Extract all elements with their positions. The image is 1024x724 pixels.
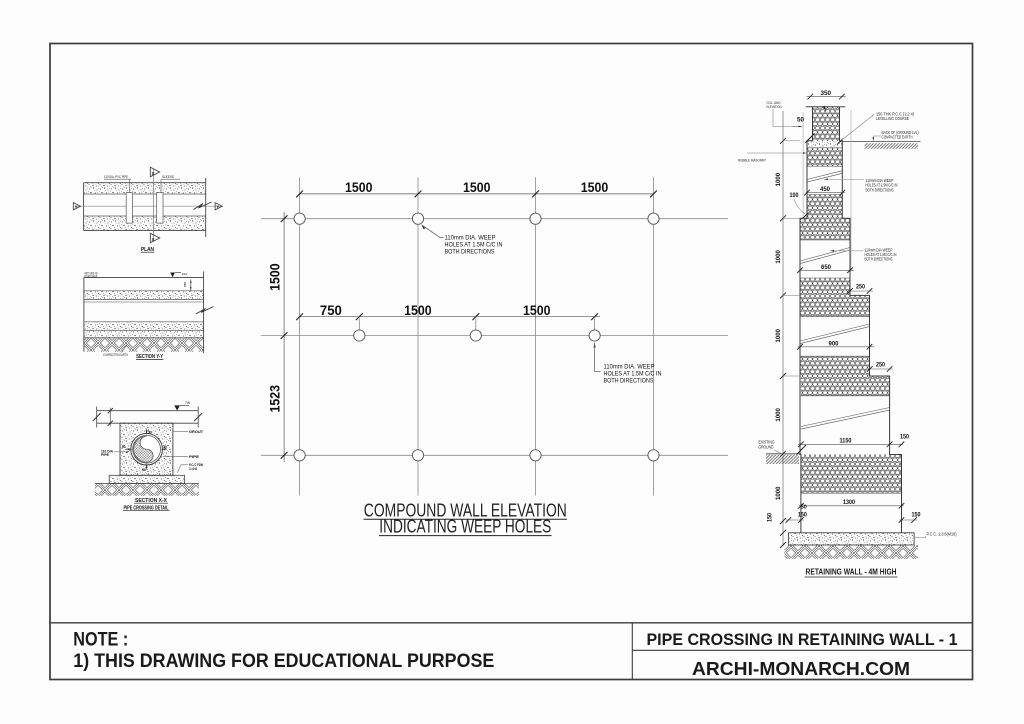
svg-text:1000: 1000 xyxy=(776,328,782,342)
svg-text:150: 150 xyxy=(900,435,910,441)
svg-text:1523: 1523 xyxy=(267,385,283,413)
svg-text:150: 150 xyxy=(912,513,922,519)
svg-text:1500: 1500 xyxy=(404,302,432,318)
svg-text:RETAINING WALL - 4M HIGH: RETAINING WALL - 4M HIGH xyxy=(806,567,897,577)
svg-text:P.C.C. 1:3:6(M10): P.C.C. 1:3:6(M10) xyxy=(927,531,958,536)
svg-text:Y: Y xyxy=(216,204,219,209)
svg-text:50: 50 xyxy=(122,445,126,449)
svg-text:ELEVATION: ELEVATION xyxy=(767,105,782,109)
svg-text:1500: 1500 xyxy=(463,179,491,195)
svg-text:750: 750 xyxy=(320,302,342,318)
svg-text:NOTE :: NOTE : xyxy=(73,630,128,651)
svg-text:HOLES AT 1.5M C/C IN: HOLES AT 1.5M C/C IN xyxy=(604,370,662,377)
svg-text:1300: 1300 xyxy=(843,500,856,506)
svg-text:1500: 1500 xyxy=(345,179,373,195)
svg-text:1000: 1000 xyxy=(776,172,782,186)
svg-text:150: 150 xyxy=(183,282,187,287)
svg-text:INDICATING WEEP HOLES: INDICATING WEEP HOLES xyxy=(379,517,551,537)
svg-text:50: 50 xyxy=(801,505,807,511)
svg-text:650: 650 xyxy=(821,265,832,271)
svg-text:1:4:8: 1:4:8 xyxy=(189,467,197,471)
svg-text:HOLES AT 1.5M C/C IN: HOLES AT 1.5M C/C IN xyxy=(445,241,503,248)
svg-text:250: 250 xyxy=(856,284,866,290)
svg-text:BOTH DIRECTIONS: BOTH DIRECTIONS xyxy=(866,187,894,192)
svg-text:250: 250 xyxy=(876,362,886,368)
svg-text:1000: 1000 xyxy=(776,407,782,421)
svg-text:BOTH DIRECTIONS: BOTH DIRECTIONS xyxy=(865,257,893,262)
svg-text:BOTH DIRECTIONS: BOTH DIRECTIONS xyxy=(445,248,495,255)
svg-text:110mm DIA. WEEP: 110mm DIA. WEEP xyxy=(445,234,496,241)
svg-text:Y: Y xyxy=(75,204,78,209)
svg-text:PIPE: PIPE xyxy=(101,453,109,457)
svg-text:110 DIA. PVC PIPE: 110 DIA. PVC PIPE xyxy=(104,175,128,179)
svg-text:COMPACTED EARTH: COMPACTED EARTH xyxy=(103,353,129,357)
svg-text:ROAD BASE: ROAD BASE xyxy=(84,275,97,279)
svg-text:PIPE: PIPE xyxy=(189,455,200,459)
svg-text:50: 50 xyxy=(142,468,146,472)
svg-text:1000: 1000 xyxy=(776,486,782,500)
svg-text:1500: 1500 xyxy=(267,263,283,291)
svg-text:GROUND: GROUND xyxy=(759,444,774,449)
svg-text:X: X xyxy=(152,237,155,242)
svg-text:1) THIS DRAWING FOR EDUCATIONA: 1) THIS DRAWING FOR EDUCATIONAL PURPOSE xyxy=(73,651,494,672)
svg-text:150: 150 xyxy=(798,513,808,519)
svg-text:100: 100 xyxy=(790,193,800,199)
svg-text:SLEEVE: SLEEVE xyxy=(162,175,174,179)
svg-text:LEVELLING COURSE: LEVELLING COURSE xyxy=(876,116,909,121)
svg-text:50: 50 xyxy=(163,445,167,449)
svg-text:110mm DIA. WEEP: 110mm DIA. WEEP xyxy=(604,363,655,370)
svg-text:PIPE CROSSING IN RETAINING WAL: PIPE CROSSING IN RETAINING WALL - 1 xyxy=(647,630,958,649)
svg-text:1500: 1500 xyxy=(523,302,551,318)
svg-text:1000: 1000 xyxy=(776,249,782,263)
svg-text:ARCHI-MONARCH.COM: ARCHI-MONARCH.COM xyxy=(692,659,910,679)
svg-text:1150: 1150 xyxy=(840,439,853,445)
svg-text:RUBBLE MASONRY: RUBBLE MASONRY xyxy=(738,158,766,163)
svg-text:X: X xyxy=(152,171,155,176)
svg-text:TW: TW xyxy=(185,401,190,405)
svg-text:FRL: FRL xyxy=(182,272,188,276)
svg-text:GROUT: GROUT xyxy=(189,430,204,434)
svg-text:COMPACTED EARTH: COMPACTED EARTH xyxy=(882,135,913,140)
svg-text:50: 50 xyxy=(148,430,152,434)
svg-text:450: 450 xyxy=(820,187,831,193)
svg-text:350: 350 xyxy=(821,91,832,97)
svg-text:BOTH DIRECTIONS: BOTH DIRECTIONS xyxy=(604,377,654,384)
svg-text:900: 900 xyxy=(829,341,840,347)
svg-text:1500: 1500 xyxy=(581,179,609,195)
svg-text:50: 50 xyxy=(797,118,805,124)
svg-text:150: 150 xyxy=(768,512,774,522)
